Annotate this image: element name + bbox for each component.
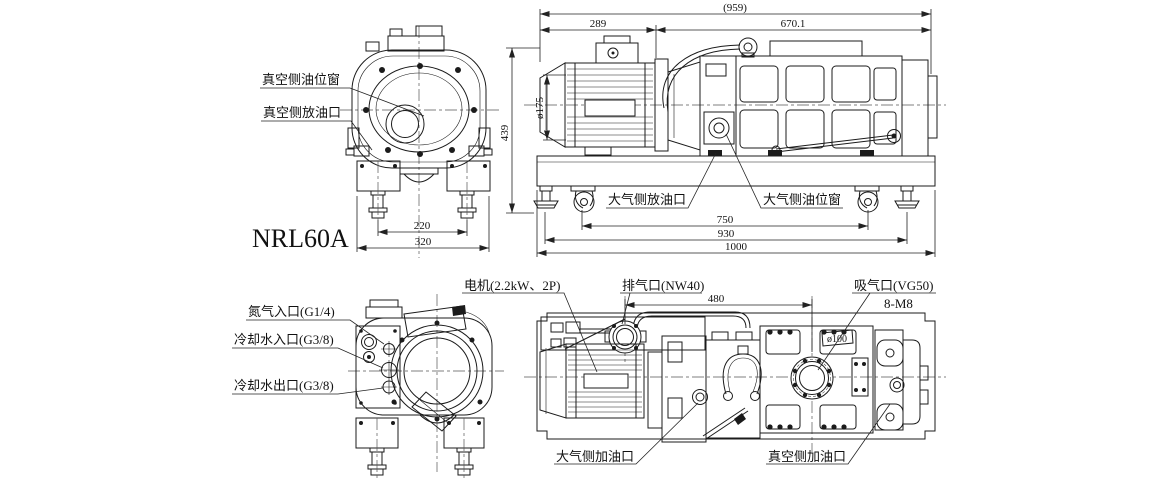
- cooling-water-outlet-label: 冷却水出口(G3/8): [234, 378, 334, 393]
- dim-930-text: 930: [718, 228, 735, 240]
- exhaust-port-label: 排气口(NW40): [622, 278, 704, 293]
- engineering-drawing-canvas: 真空侧油位窗 真空侧放油口 220 320 NRL60A (959) 289 6…: [0, 0, 1160, 480]
- vacuum-side-oil-drain-label: 真空侧放油口: [263, 105, 341, 120]
- atm-side-oil-fill-label: 大气侧加油口: [556, 449, 634, 464]
- top-end-cover: [875, 330, 928, 430]
- vacuum-side-oil-window-label: 真空侧油位窗: [262, 72, 340, 87]
- dim-480-text: 480: [708, 293, 725, 305]
- dim-1000-text: 1000: [725, 241, 748, 253]
- dim-439-text: 439: [499, 124, 511, 141]
- side-view: (959) 289 670.1 439 ø175: [499, 2, 946, 257]
- side-dim-bottom: 750 930 1000: [537, 190, 935, 257]
- pump-drawing-svg: 真空侧油位窗 真空侧放油口 220 320 NRL60A (959) 289 6…: [0, 0, 1160, 480]
- dim-750-text: 750: [717, 214, 734, 226]
- rear-view: 氮气入口(G1/4) 冷却水入口(G3/8) 冷却水出口(G3/8): [232, 294, 504, 478]
- atm-side-oil-window-label: 大气侧油位窗: [763, 192, 841, 207]
- top-mid-module: [693, 332, 762, 439]
- dim-220-text: 220: [414, 220, 431, 232]
- side-dim-left: 439 ø175: [499, 48, 566, 213]
- cooling-water-inlet-label: 冷却水入口(G3/8): [234, 332, 334, 347]
- side-motor: [540, 36, 700, 155]
- top-label-vac-fill: 真空侧加油口: [766, 404, 890, 464]
- suction-port-label: 吸气口(VG50): [854, 278, 933, 293]
- rear-label-water-out: 冷却水出口(G3/8): [232, 378, 383, 394]
- rear-port-panel: [356, 326, 400, 408]
- front-top-fittings: [366, 26, 444, 51]
- dim-959-text: (959): [723, 2, 747, 14]
- nitrogen-inlet-label: 氮气入口(G1/4): [248, 304, 335, 319]
- side-label-atm-window: 大气侧油位窗: [726, 134, 843, 208]
- top-dim-480: 480: [625, 293, 812, 352]
- dim-670-text: 670.1: [781, 18, 806, 30]
- front-view: 真空侧油位窗 真空侧放油口 220 320 NRL60A: [252, 26, 500, 258]
- rear-feet: [356, 418, 484, 478]
- rear-housing: [356, 318, 492, 422]
- top-view: ø100 480 电机(2.2kW、2P) 排气口(NW40): [462, 278, 946, 464]
- front-feet: [357, 161, 490, 220]
- dim-289-text: 289: [590, 18, 607, 30]
- side-base: [534, 156, 935, 212]
- side-label-atm-drain: 大气侧放油口: [606, 153, 716, 208]
- rear-label-water-in: 冷却水入口(G3/8): [232, 332, 383, 368]
- atm-side-oil-drain-label: 大气侧放油口: [608, 192, 686, 207]
- side-pump-body: [663, 38, 937, 156]
- front-dimensions: 220 320: [357, 196, 489, 252]
- dim-320-text: 320: [415, 236, 432, 248]
- model-number: NRL60A: [252, 224, 349, 253]
- front-sight-glass: [386, 105, 424, 143]
- motor-label: 电机(2.2kW、2P): [464, 278, 560, 293]
- vacuum-side-oil-fill-label: 真空侧加油口: [768, 449, 846, 464]
- bolt-spec-label: 8-M8: [884, 296, 913, 311]
- suction-diameter-note: ø100: [827, 334, 847, 345]
